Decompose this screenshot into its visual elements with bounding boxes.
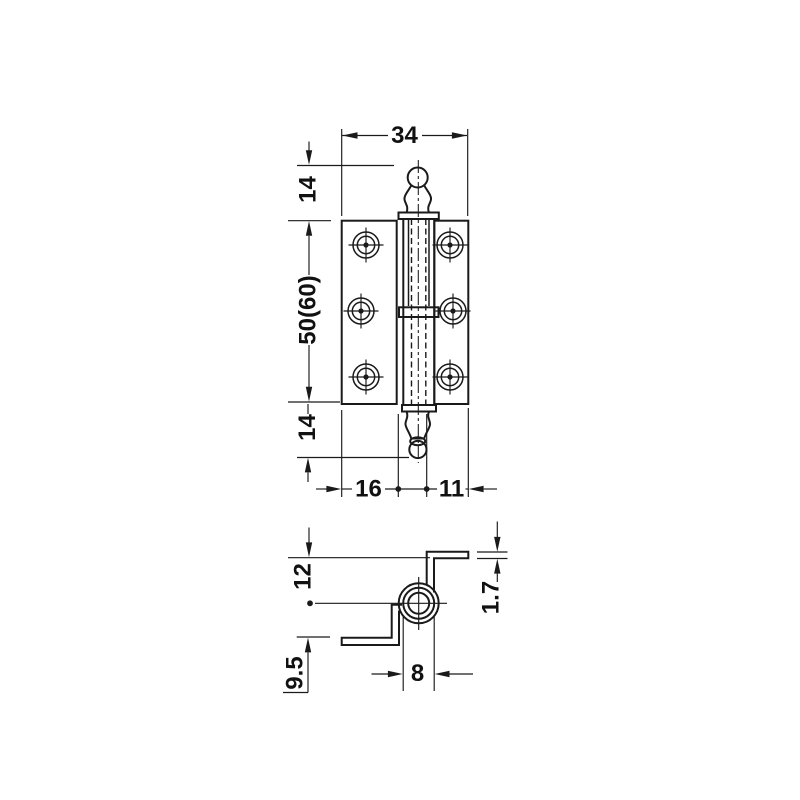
screw-holes xyxy=(344,228,471,395)
top-finial-ball xyxy=(408,168,428,188)
front-view: 34 14 50(60) 14 xyxy=(288,122,497,503)
dim-finial-bottom: 14 xyxy=(294,404,409,482)
dim-leaf-height: 50(60) xyxy=(288,221,340,402)
hinge-technical-drawing: 34 14 50(60) 14 xyxy=(0,0,800,800)
dim-axis-upper-label: 12 xyxy=(290,563,317,590)
dim-offset-left-label: 16 xyxy=(355,476,382,503)
dim-leaf-height-label: 50(60) xyxy=(295,275,322,344)
screw-hole xyxy=(436,294,471,329)
dim-axis-lower: 9.5 xyxy=(282,637,331,693)
bottom-finial-collar xyxy=(402,405,436,412)
screw-hole xyxy=(349,228,384,263)
dim-material-thickness-label: 1.7 xyxy=(478,581,505,614)
dim-finial-bottom-label: 14 xyxy=(294,414,321,441)
dim-axis-lower-label: 9.5 xyxy=(282,656,309,689)
technical-drawing-page: 34 14 50(60) 14 xyxy=(0,0,800,800)
dim-material-thickness: 1.7 xyxy=(477,522,508,615)
dim-width-label: 34 xyxy=(391,122,418,149)
lower-leaf-section xyxy=(342,605,402,645)
screw-hole xyxy=(344,294,379,329)
dim-knuckle-diameter-label: 8 xyxy=(411,660,424,687)
top-finial-vase xyxy=(404,186,431,213)
section-view: 12 9.5 8 1.7 xyxy=(282,522,508,693)
dim-axis-upper: 12 xyxy=(288,528,430,607)
dim-finial-top: 14 xyxy=(295,142,395,203)
dim-finial-top-label: 14 xyxy=(295,176,322,203)
screw-hole xyxy=(349,360,384,395)
screw-hole xyxy=(433,360,468,395)
dim-offset-right-label: 11 xyxy=(439,476,464,503)
upper-leaf-section xyxy=(427,552,469,593)
screw-hole xyxy=(433,228,468,263)
dim-knuckle-diameter: 8 xyxy=(372,616,474,691)
bottom-finial xyxy=(402,405,436,458)
